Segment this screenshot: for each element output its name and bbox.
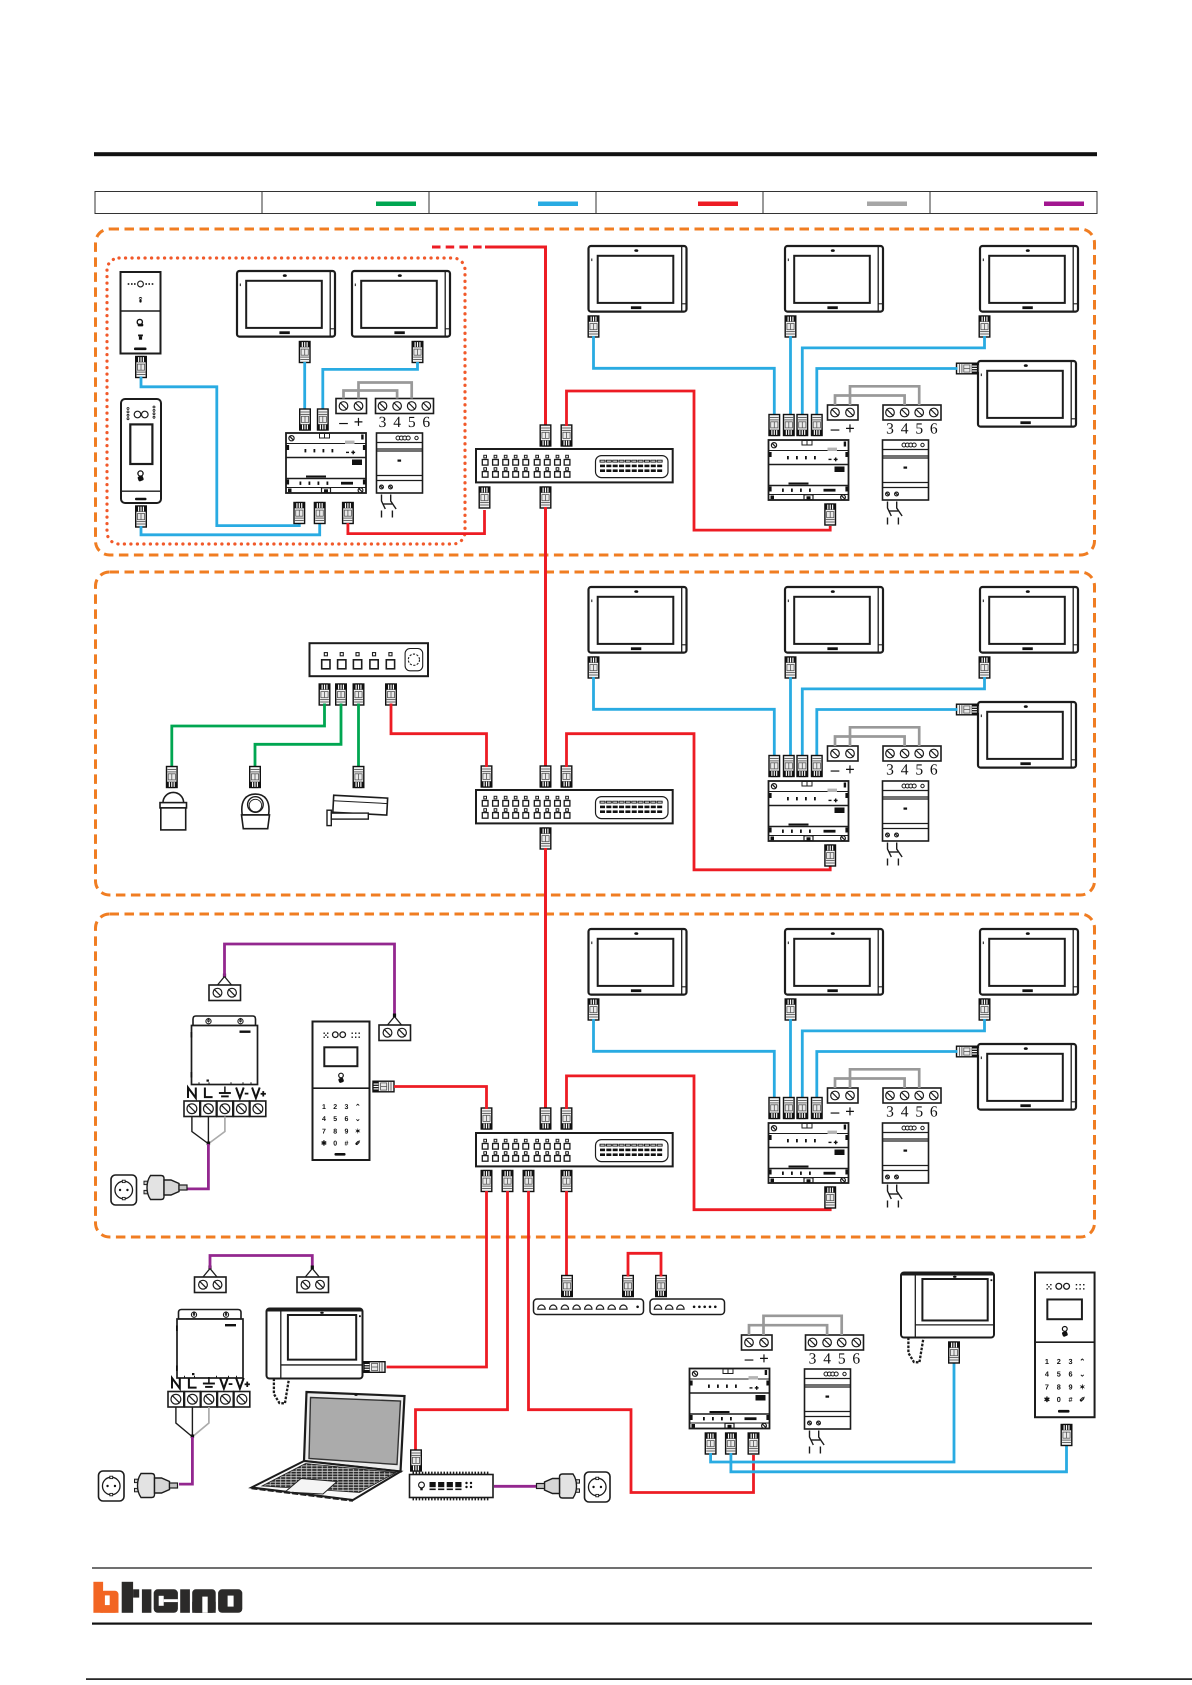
svg-text:4: 4 <box>901 1104 909 1121</box>
svg-text:7: 7 <box>322 1128 326 1135</box>
svg-text:5: 5 <box>408 414 416 431</box>
svg-text:–: – <box>830 419 840 438</box>
svg-text:9: 9 <box>345 1128 349 1135</box>
svg-text:4: 4 <box>823 1351 831 1368</box>
svg-text:✐: ✐ <box>1079 1395 1085 1404</box>
svg-text:–: – <box>744 1349 754 1368</box>
svg-text:3: 3 <box>809 1351 817 1368</box>
svg-text:0: 0 <box>333 1141 337 1148</box>
svg-text:–: – <box>338 413 348 432</box>
svg-text:⌄: ⌄ <box>355 1116 361 1123</box>
svg-text:✐: ✐ <box>355 1140 361 1148</box>
svg-text:2: 2 <box>1057 1357 1061 1366</box>
svg-text:4: 4 <box>322 1116 326 1123</box>
svg-text:6: 6 <box>930 1104 938 1121</box>
svg-text:7: 7 <box>1045 1382 1049 1391</box>
svg-text:⌄: ⌄ <box>1079 1370 1085 1379</box>
svg-text:6: 6 <box>1068 1370 1072 1379</box>
svg-text:6: 6 <box>930 421 938 438</box>
svg-text:5: 5 <box>838 1351 846 1368</box>
svg-text:9: 9 <box>1068 1382 1072 1391</box>
svg-text:+: + <box>354 413 364 432</box>
svg-text:5: 5 <box>915 421 923 438</box>
svg-text:6: 6 <box>345 1116 349 1123</box>
svg-text:4: 4 <box>393 414 401 431</box>
svg-text:5: 5 <box>915 762 923 779</box>
svg-text:3: 3 <box>379 414 387 431</box>
svg-text:#: # <box>345 1141 349 1148</box>
svg-text:✱: ✱ <box>321 1140 327 1148</box>
svg-text:8: 8 <box>333 1128 337 1135</box>
svg-text:+: + <box>845 419 855 438</box>
svg-text:8: 8 <box>1057 1382 1061 1391</box>
svg-text:–: – <box>830 760 840 779</box>
svg-text:+: + <box>759 1349 769 1368</box>
svg-text:6: 6 <box>422 414 430 431</box>
svg-text:1: 1 <box>322 1104 326 1111</box>
svg-text:–: – <box>830 1102 840 1121</box>
svg-text:3: 3 <box>886 1104 894 1121</box>
svg-text:+: + <box>845 760 855 779</box>
svg-text:✶: ✶ <box>1079 1382 1085 1391</box>
svg-text:✶: ✶ <box>355 1127 361 1135</box>
svg-text:4: 4 <box>901 421 909 438</box>
svg-text:⌃: ⌃ <box>1079 1357 1085 1366</box>
svg-text:6: 6 <box>852 1351 860 1368</box>
svg-text:4: 4 <box>901 762 909 779</box>
svg-text:3: 3 <box>886 762 894 779</box>
svg-text:1: 1 <box>1045 1357 1049 1366</box>
svg-text:3: 3 <box>1068 1357 1072 1366</box>
svg-text:✱: ✱ <box>1044 1395 1050 1404</box>
svg-text:⌃: ⌃ <box>355 1103 361 1111</box>
svg-text:5: 5 <box>915 1104 923 1121</box>
svg-text:3: 3 <box>886 421 894 438</box>
svg-text:3: 3 <box>345 1104 349 1111</box>
svg-text:2: 2 <box>333 1104 337 1111</box>
svg-text:0: 0 <box>1057 1395 1061 1404</box>
svg-text:6: 6 <box>930 762 938 779</box>
svg-text:5: 5 <box>1057 1370 1061 1379</box>
svg-text:#: # <box>1068 1395 1072 1404</box>
svg-text:+: + <box>845 1102 855 1121</box>
svg-text:5: 5 <box>333 1116 337 1123</box>
